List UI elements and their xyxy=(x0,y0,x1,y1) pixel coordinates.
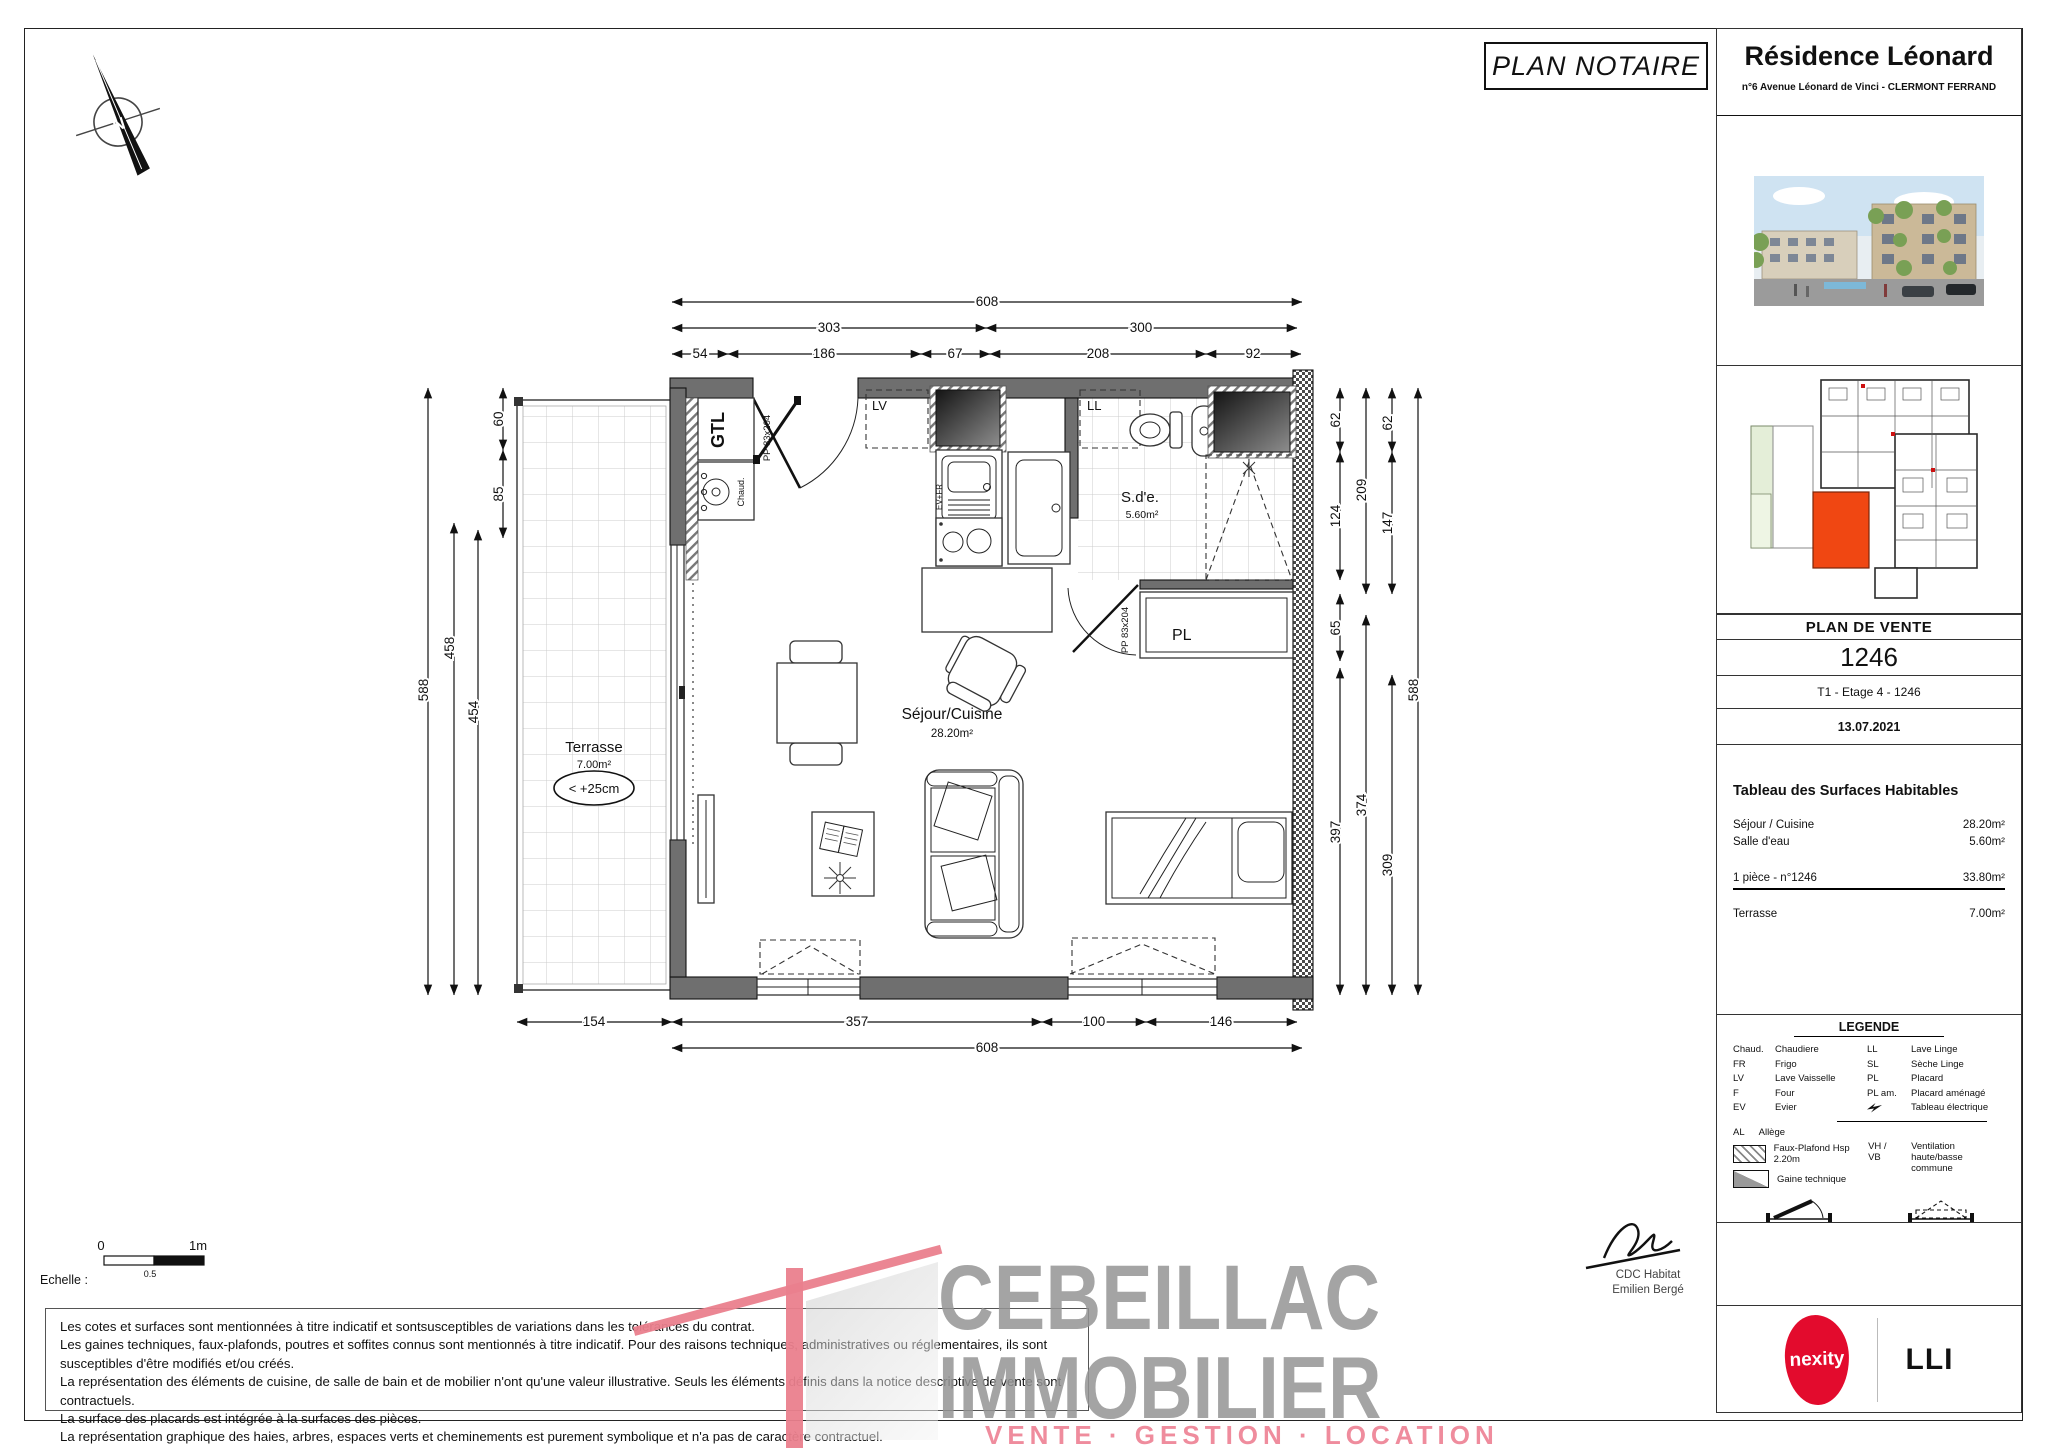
dimensions-top: 608 303 300 54 186 67 208 92 xyxy=(672,294,1302,361)
lot-type-row: T1 - Etage 4 - 1246 xyxy=(1717,676,2021,709)
plan-notaire-label: PLAN NOTAIRE xyxy=(1492,51,1700,82)
date-row: 13.07.2021 xyxy=(1717,709,2021,745)
technical-duct-bath xyxy=(1214,392,1290,452)
car xyxy=(1902,286,1934,297)
living-room: Séjour/Cuisine 28.20m² xyxy=(698,630,1292,938)
surface-terrace-label: Terrasse xyxy=(1733,908,1777,920)
surface-label: Salle d'eau xyxy=(1733,836,1790,848)
dim-65: 65 xyxy=(1328,620,1343,635)
dim-154: 154 xyxy=(583,1014,606,1029)
title-block-panel: Résidence Léonard n°6 Avenue Léonard de … xyxy=(1716,28,2022,1413)
surface-total-value: 33.80m² xyxy=(1963,872,2005,884)
dim-608-top: 608 xyxy=(976,294,999,309)
surface-row: Séjour / Cuisine 28.20m² xyxy=(1733,819,2005,831)
dim-62a: 62 xyxy=(1328,412,1343,427)
window-opening-symbol xyxy=(1070,944,1215,974)
surface-value: 28.20m² xyxy=(1963,819,2005,831)
nexity-label: nexity xyxy=(1789,1348,1845,1372)
lightning-icon xyxy=(1867,1102,1911,1116)
bathroom-door-label: PP 83x204 xyxy=(1120,607,1131,653)
compass-icon: N xyxy=(54,40,178,190)
legend-label: Ventilation xyxy=(1911,1141,2005,1152)
legend-abbr: LV xyxy=(1733,1073,1775,1084)
disclaimer-line: Les gaines techniques, faux-plafonds, po… xyxy=(60,1336,1074,1373)
dim-588-right: 588 xyxy=(1406,679,1421,702)
plan-date: 13.07.2021 xyxy=(1838,720,1901,734)
legend-abbr: F xyxy=(1733,1088,1775,1099)
residence-header: Résidence Léonard n°6 Avenue Léonard de … xyxy=(1717,29,2021,116)
dim-186: 186 xyxy=(813,346,836,361)
residence-title: Résidence Léonard xyxy=(1717,41,2021,72)
legend-label: Sèche Linge xyxy=(1911,1059,2005,1070)
disclaimer-line: La représentation des éléments de cuisin… xyxy=(60,1373,1074,1410)
surface-value: 5.60m² xyxy=(1969,836,2005,848)
living-area: 28.20m² xyxy=(931,728,973,740)
kitchen-peninsula xyxy=(922,568,1052,632)
washer-label: LL xyxy=(1087,398,1101,413)
scale-0: 0 xyxy=(97,1238,104,1253)
legend-label: Frigo xyxy=(1775,1059,1867,1070)
surface-terrace-value: 7.00m² xyxy=(1969,908,2005,920)
gtl-closet: GTL Chaud. xyxy=(686,396,801,580)
surface-total-label: 1 pièce - n°1246 xyxy=(1733,872,1817,884)
legend-grid: Chaud.Chaudiere LLLave Linge FRFrigo SLS… xyxy=(1717,1044,2021,1116)
lot-number: 1246 xyxy=(1840,642,1898,673)
legend-abbr: LL xyxy=(1867,1044,1911,1055)
surfaces-title: Tableau des Surfaces Habitables xyxy=(1733,783,2005,799)
legend-label: Four xyxy=(1775,1088,1867,1099)
surfaces-table: Tableau des Surfaces Habitables Séjour /… xyxy=(1717,745,2021,1015)
legend-gaine: Gaine technique xyxy=(1733,1170,1868,1188)
legend-label: Faux-Plafond Hsp 2.20m xyxy=(1774,1143,1869,1165)
dim-85: 85 xyxy=(491,486,506,501)
person xyxy=(1884,284,1887,297)
dim-357: 357 xyxy=(846,1014,869,1029)
dim-608-bottom: 608 xyxy=(976,1040,999,1055)
north-needle xyxy=(93,49,151,178)
disclaimer-line: La surface des placards est intégrée à l… xyxy=(60,1410,1074,1428)
legend-ventilation: VH / VB Ventilation haute/basse commune xyxy=(1868,1141,2005,1188)
person xyxy=(1794,284,1797,296)
legend-title: LEGENDE xyxy=(1717,1020,2021,1034)
bathroom-label: S.d'e. xyxy=(1121,489,1159,506)
surface-terrace-row: Terrasse 7.00m² xyxy=(1733,908,2005,920)
dimensions-left: 588 458 454 60 85 xyxy=(416,388,506,995)
bathroom-area: 5.60m² xyxy=(1126,509,1159,521)
dishwasher-label: LV xyxy=(872,398,887,413)
dim-67: 67 xyxy=(947,346,962,361)
surface-label: Séjour / Cuisine xyxy=(1733,819,1814,831)
legend-abbr: SL xyxy=(1867,1059,1911,1070)
dim-208: 208 xyxy=(1087,346,1110,361)
dim-146: 146 xyxy=(1210,1014,1233,1029)
lli-label: LLI xyxy=(1906,1343,1954,1377)
car xyxy=(1946,284,1976,295)
legend-label: Evier xyxy=(1775,1102,1867,1116)
dim-124: 124 xyxy=(1328,504,1343,527)
lot-number-row: 1246 xyxy=(1717,640,2021,676)
surface-row: Salle d'eau 5.60m² xyxy=(1733,836,2005,848)
signature-company: CDC Habitat xyxy=(1616,1269,1681,1281)
legend-section: LEGENDE Chaud.Chaudiere LLLave Linge FRF… xyxy=(1717,1015,2021,1223)
legend-faux-plafond: Faux-Plafond Hsp 2.20m xyxy=(1733,1143,1868,1165)
lot-type: T1 - Etage 4 - 1246 xyxy=(1817,685,1920,699)
tv-console xyxy=(698,795,714,903)
divider xyxy=(1877,1318,1878,1402)
technical-duct-kitchen xyxy=(936,390,1000,446)
shared-wall-hatched xyxy=(1293,370,1313,1010)
residence-photo xyxy=(1754,176,1984,306)
legend-label: Lave Linge xyxy=(1911,1044,2005,1055)
person xyxy=(1806,286,1809,297)
legend-abbr: PL xyxy=(1867,1073,1911,1084)
legend-label: Lave Vaisselle xyxy=(1775,1073,1867,1084)
gaine-swatch xyxy=(1733,1170,1769,1188)
terrace-level-note: < +25cm xyxy=(569,781,620,796)
empty-section xyxy=(1717,1223,2021,1306)
residence-address: n°6 Avenue Léonard de Vinci - CLERMONT F… xyxy=(1717,82,2021,93)
nexity-logo: nexity xyxy=(1783,1313,1850,1405)
dim-454: 454 xyxy=(466,700,481,723)
dimensions-right: 62 124 65 397 209 374 62 147 309 588 xyxy=(1328,388,1421,995)
scale-05: 0.5 xyxy=(144,1269,157,1279)
terrace-post xyxy=(514,397,523,406)
toilet xyxy=(1130,412,1182,448)
sink-label: EV+FR xyxy=(935,484,944,510)
branding-section: nexity LLI xyxy=(1717,1306,2021,1413)
dim-54: 54 xyxy=(692,346,708,361)
terrace-label: Terrasse xyxy=(565,739,623,756)
legend-label: Gaine technique xyxy=(1777,1174,1846,1185)
dim-458: 458 xyxy=(442,637,457,660)
legend-abbr: PL am. xyxy=(1867,1088,1911,1099)
terrace: Terrasse 7.00m² < +25cm xyxy=(514,397,672,993)
dim-303: 303 xyxy=(818,320,841,335)
signature-name: Emilien Bergé xyxy=(1612,1284,1684,1296)
disclaimer-line: La représentation graphique des haies, a… xyxy=(60,1428,1074,1446)
plan-notaire-page: .dimln{stroke:#111;stroke-width:1.2;} .d… xyxy=(0,0,2048,1448)
legend-label: Allège xyxy=(1759,1127,1785,1138)
disclaimer-box: Les cotes et surfaces sont mentionnées à… xyxy=(45,1308,1089,1411)
kitchen: LV EV+FR xyxy=(866,386,1070,632)
gtl-label: GTL xyxy=(708,412,728,448)
legend-abbr: VH / VB xyxy=(1868,1141,1901,1188)
legend-label: Placard aménagé xyxy=(1911,1088,2005,1099)
disclaimer-line: Les cotes et surfaces sont mentionnées à… xyxy=(60,1318,1074,1336)
closet-label: PL xyxy=(1172,627,1192,644)
pf-symbol-figure: PF = Porte Fenêtre xyxy=(1758,1198,1839,1223)
dim-374: 374 xyxy=(1354,793,1369,816)
legend-label: haute/basse commune xyxy=(1911,1152,2005,1174)
bathroom-door: PP 83x204 xyxy=(1068,585,1138,655)
dining-table xyxy=(777,641,857,765)
dim-60: 60 xyxy=(491,411,506,426)
compass-n: N xyxy=(110,113,128,135)
legend-abbr: FR xyxy=(1733,1059,1775,1070)
dim-397: 397 xyxy=(1328,821,1343,844)
dim-588-left: 588 xyxy=(416,679,431,702)
surface-total-row: 1 pièce - n°1246 33.80m² xyxy=(1733,872,2005,890)
f-symbol-figure: F = Fenêtre xyxy=(1902,1198,1980,1223)
key-plan xyxy=(1743,374,1995,606)
legend-abbr: Chaud. xyxy=(1733,1044,1775,1055)
plan-de-vente-label: PLAN DE VENTE xyxy=(1806,619,1933,636)
pool xyxy=(1824,282,1866,289)
closet-pl: PL xyxy=(1140,592,1293,658)
boiler-label: Chaud. xyxy=(736,477,746,506)
faux-plafond-swatch xyxy=(1733,1145,1766,1163)
dim-92: 92 xyxy=(1245,346,1260,361)
fridge-oven-column xyxy=(1008,452,1070,564)
dim-300: 300 xyxy=(1130,320,1153,335)
signature: CDC Habitat Emilien Bergé xyxy=(1586,1224,1684,1296)
plan-de-vente-row: PLAN DE VENTE xyxy=(1717,614,2021,640)
coffee-table xyxy=(812,812,874,896)
scale-bar: 0 1m 0.5 Echelle : xyxy=(40,1238,207,1287)
legend-al: AL Allège xyxy=(1733,1127,1868,1138)
echelle-label: Echelle : xyxy=(40,1273,88,1287)
terrace-post xyxy=(514,984,523,993)
dimensions-bottom: 154 357 100 146 608 xyxy=(517,1014,1302,1055)
dim-100: 100 xyxy=(1083,1014,1106,1029)
porte-fenetre-icon xyxy=(1760,1198,1838,1223)
legend-label: Chaudiere xyxy=(1775,1044,1867,1055)
dim-147: 147 xyxy=(1380,512,1395,535)
legend-abbr: AL xyxy=(1733,1127,1745,1138)
dim-209: 209 xyxy=(1354,479,1369,502)
cloud xyxy=(1773,187,1825,205)
fenetre-icon xyxy=(1902,1198,1980,1223)
key-plan-section xyxy=(1717,366,2021,614)
scale-1m: 1m xyxy=(189,1238,207,1253)
bed xyxy=(1106,812,1292,904)
terrace-area: 7.00m² xyxy=(577,759,612,771)
sofa xyxy=(925,770,1023,938)
dim-62b: 62 xyxy=(1380,415,1395,430)
legend-label: Tableau électrique xyxy=(1911,1102,2005,1116)
dim-309: 309 xyxy=(1380,854,1395,877)
window-opening-symbol xyxy=(762,946,858,974)
key-plan-unit-1246 xyxy=(1813,492,1869,568)
plan-notaire-box: PLAN NOTAIRE xyxy=(1484,42,1708,90)
legend-label: Placard xyxy=(1911,1073,2005,1084)
residence-photo-section xyxy=(1717,116,2021,366)
hob xyxy=(936,518,1002,566)
legend-abbr: EV xyxy=(1733,1102,1775,1116)
